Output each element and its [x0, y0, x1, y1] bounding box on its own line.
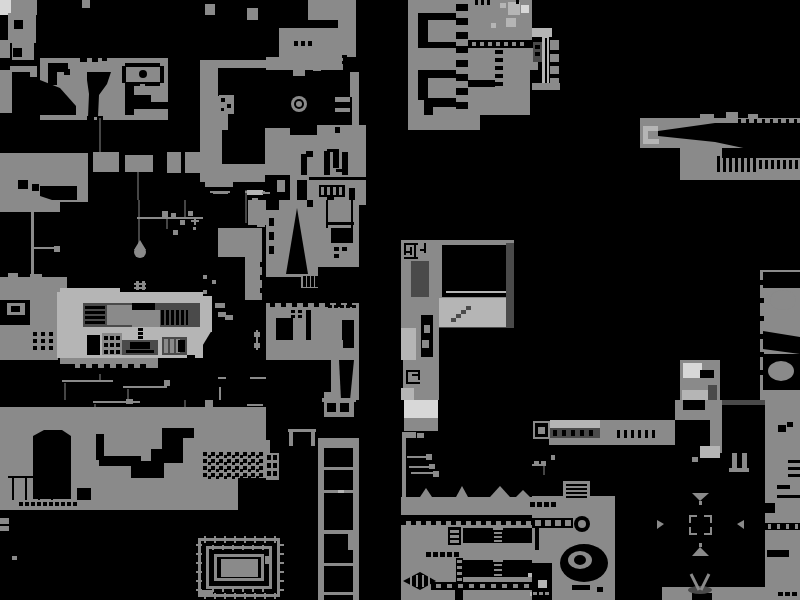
game-window — [0, 0, 800, 600]
world-map-bitmap — [0, 0, 800, 600]
